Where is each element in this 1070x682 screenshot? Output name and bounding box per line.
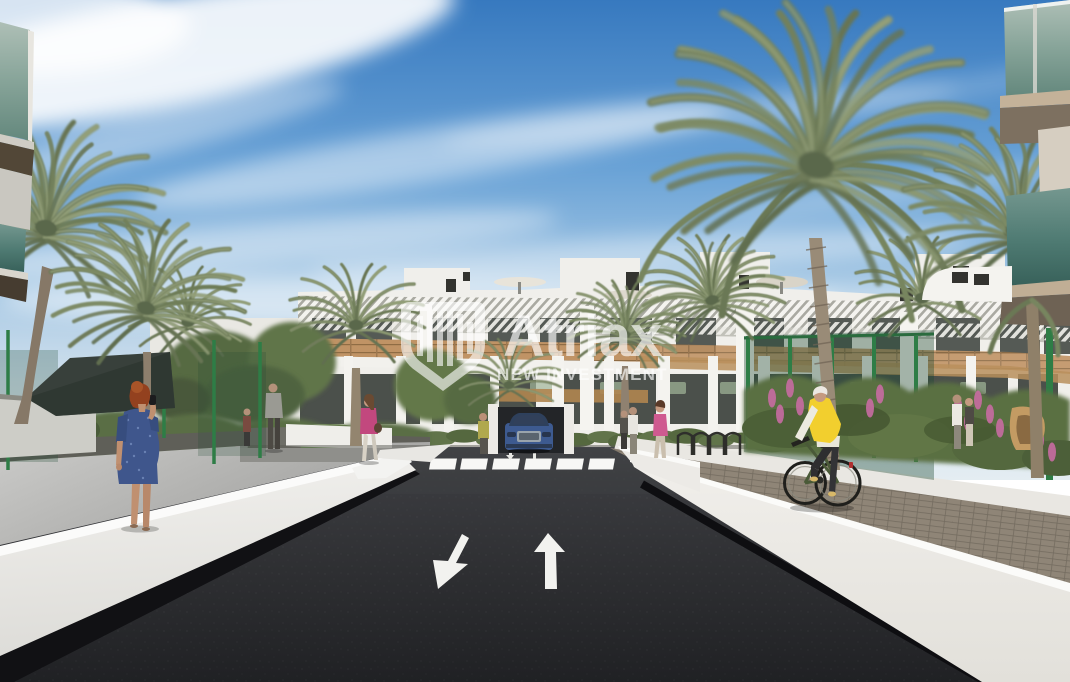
svg-text:NEW INVESTMENT: NEW INVESTMENT	[497, 365, 668, 384]
svg-text:Atriax: Atriax	[503, 304, 662, 369]
